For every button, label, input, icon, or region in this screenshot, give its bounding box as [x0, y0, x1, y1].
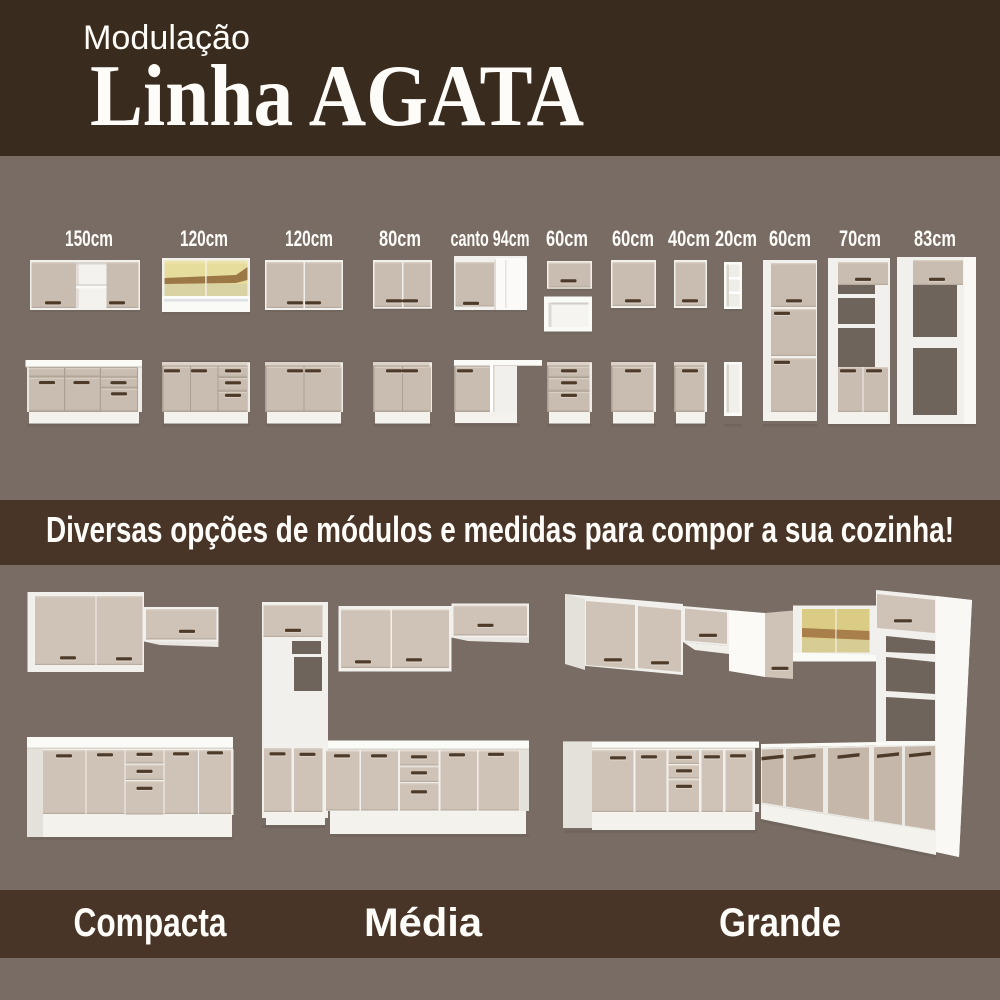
svg-text:120cm: 120cm: [180, 226, 228, 251]
svg-text:80cm: 80cm: [379, 226, 421, 251]
svg-text:70cm: 70cm: [839, 226, 881, 251]
svg-text:Compacta: Compacta: [74, 901, 228, 945]
svg-text:150cm: 150cm: [65, 226, 113, 251]
svg-text:83cm: 83cm: [914, 226, 956, 251]
svg-text:20cm: 20cm: [715, 226, 757, 251]
svg-text:120cm: 120cm: [285, 226, 333, 251]
svg-text:60cm: 60cm: [546, 226, 588, 251]
svg-text:Linha AGATA: Linha AGATA: [90, 48, 584, 145]
svg-text:Grande: Grande: [719, 901, 841, 945]
svg-text:canto 94cm: canto 94cm: [451, 226, 530, 251]
svg-text:60cm: 60cm: [769, 226, 811, 251]
svg-text:Média: Média: [364, 901, 483, 945]
svg-text:40cm: 40cm: [668, 226, 710, 251]
svg-text:60cm: 60cm: [612, 226, 654, 251]
svg-text:Diversas opções de módulos e m: Diversas opções de módulos e medidas par…: [46, 509, 954, 550]
